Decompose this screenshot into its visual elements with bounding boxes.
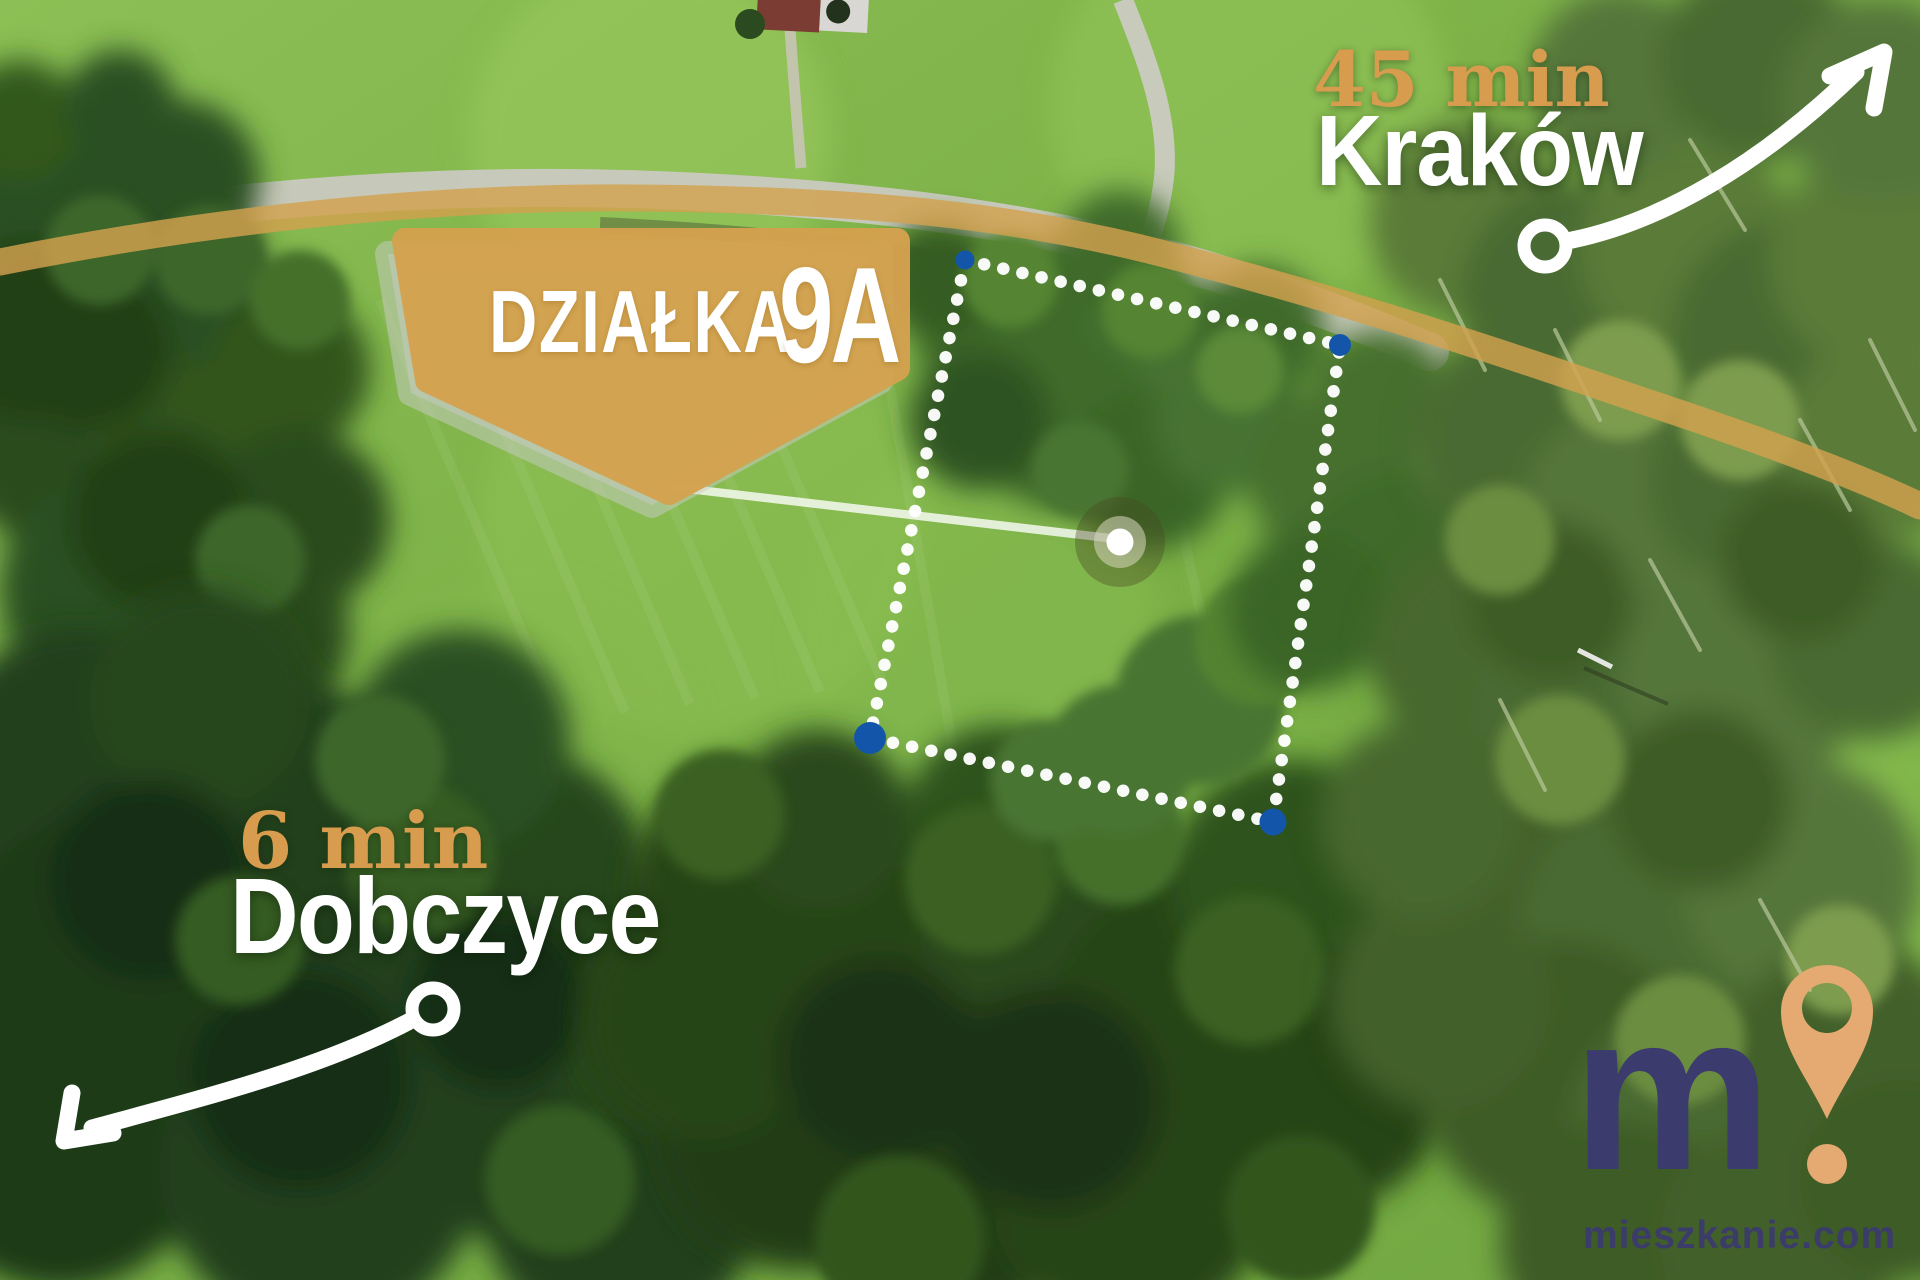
dobczyce-label: Dobczyce (230, 862, 660, 970)
corner-dot-top-left (956, 251, 975, 270)
location-pin-icon (1781, 965, 1873, 1184)
banner-leader-line (672, 487, 1117, 539)
banner-plot-number: 9A (779, 247, 898, 383)
dobczyce-arrow-curve (92, 1022, 408, 1128)
banner-plot-label: DZIAŁKA (489, 278, 793, 366)
krakow-label: Kraków (1316, 101, 1643, 201)
corner-dot-bottom-left (854, 722, 886, 754)
highlighted-route-band (0, 198, 1920, 506)
corner-dot-bottom-right (1260, 809, 1287, 836)
plot-center-marker (1075, 497, 1165, 587)
logo-website: mieszkanie.com (1583, 1216, 1896, 1255)
krakow-marker-ring (1524, 225, 1566, 267)
dobczyce-marker-ring (412, 988, 454, 1030)
corner-dot-top-right (1329, 334, 1351, 356)
logo-letter-m: m (1572, 979, 1772, 1204)
aerial-listing-image: DZIAŁKA 9A 45 min Kraków 6 min Dobczyce … (0, 0, 1920, 1280)
